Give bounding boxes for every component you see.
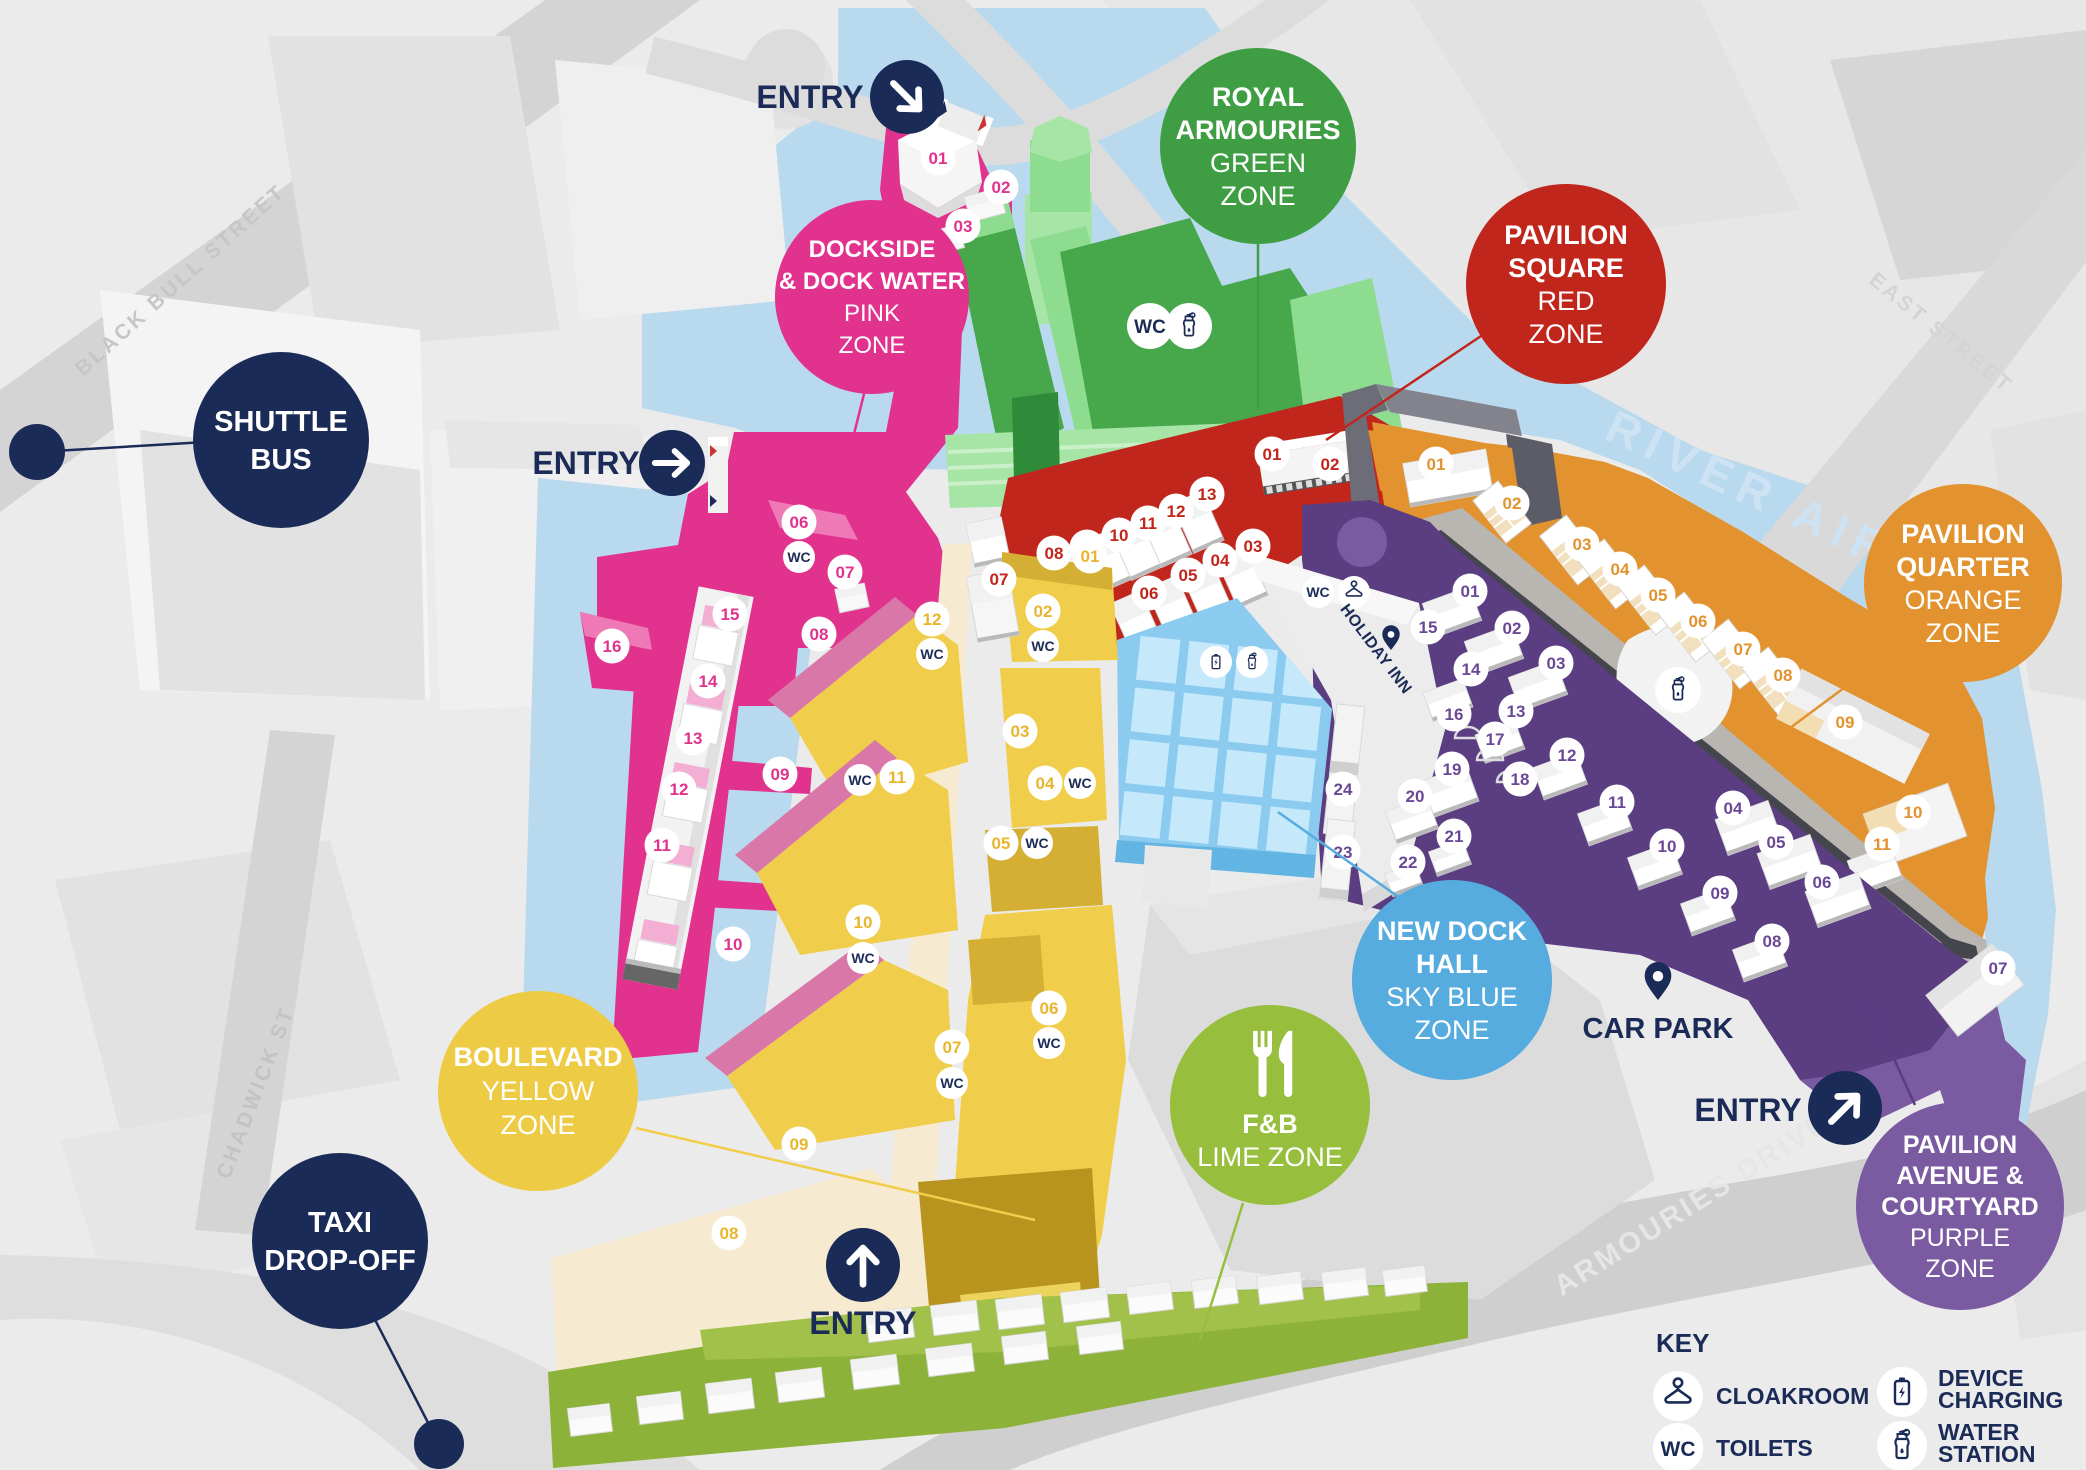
svg-text:WC: WC	[1025, 835, 1048, 851]
svg-text:ENTRY: ENTRY	[1694, 1092, 1801, 1128]
svg-text:PAVILION: PAVILION	[1504, 220, 1628, 250]
svg-text:PURPLE: PURPLE	[1910, 1224, 2010, 1252]
svg-text:10: 10	[1658, 837, 1677, 856]
svg-text:11: 11	[1873, 835, 1891, 854]
svg-text:09: 09	[771, 765, 790, 784]
svg-text:13: 13	[1198, 485, 1217, 504]
svg-text:08: 08	[810, 625, 829, 644]
svg-text:ORANGE: ORANGE	[1904, 585, 2021, 615]
svg-text:15: 15	[721, 605, 740, 624]
svg-text:WC: WC	[851, 950, 874, 966]
svg-text:ZONE: ZONE	[500, 1110, 575, 1140]
svg-text:02: 02	[1321, 455, 1340, 474]
svg-text:01: 01	[1461, 582, 1480, 601]
svg-text:WC: WC	[1031, 638, 1054, 654]
svg-text:07: 07	[1989, 959, 2008, 978]
svg-text:06: 06	[1689, 612, 1708, 631]
svg-text:03: 03	[1244, 537, 1263, 556]
svg-text:WC: WC	[940, 1075, 963, 1091]
svg-text:13: 13	[1507, 702, 1526, 721]
svg-text:ARMOURIES: ARMOURIES	[1175, 115, 1340, 145]
svg-text:03: 03	[1573, 535, 1592, 554]
svg-text:22: 22	[1399, 853, 1418, 872]
svg-text:24: 24	[1334, 780, 1353, 799]
svg-text:TAXI: TAXI	[308, 1207, 372, 1239]
svg-text:CHARGING: CHARGING	[1938, 1387, 2063, 1413]
svg-text:18: 18	[1511, 770, 1530, 789]
svg-text:03: 03	[1547, 654, 1566, 673]
svg-text:04: 04	[1036, 774, 1055, 793]
svg-text:01: 01	[1263, 445, 1282, 464]
svg-text:14: 14	[699, 672, 718, 691]
svg-text:06: 06	[790, 513, 809, 532]
svg-text:WC: WC	[1661, 1438, 1696, 1461]
svg-text:05: 05	[1649, 586, 1668, 605]
svg-text:12: 12	[1167, 502, 1186, 521]
svg-text:20: 20	[1406, 787, 1425, 806]
svg-text:11: 11	[888, 768, 906, 787]
svg-text:WC: WC	[1134, 317, 1166, 338]
svg-text:01: 01	[1427, 455, 1446, 474]
svg-text:08: 08	[1774, 666, 1793, 685]
svg-text:F&B: F&B	[1242, 1109, 1298, 1139]
svg-text:GREEN: GREEN	[1210, 148, 1306, 178]
svg-text:15: 15	[1419, 618, 1438, 637]
svg-text:ROYAL: ROYAL	[1212, 82, 1304, 112]
svg-text:14: 14	[1462, 660, 1481, 679]
svg-text:COURTYARD: COURTYARD	[1881, 1193, 2038, 1221]
svg-text:05: 05	[1767, 833, 1786, 852]
svg-text:10: 10	[854, 913, 873, 932]
svg-text:06: 06	[1040, 999, 1059, 1018]
svg-text:WC: WC	[848, 772, 871, 788]
svg-text:HALL: HALL	[1416, 949, 1488, 979]
svg-text:12: 12	[1558, 746, 1577, 765]
svg-text:& DOCK WATER: & DOCK WATER	[779, 268, 965, 295]
svg-text:08: 08	[720, 1224, 739, 1243]
svg-text:09: 09	[790, 1135, 809, 1154]
svg-text:ZONE: ZONE	[1220, 181, 1295, 211]
svg-text:11: 11	[653, 836, 671, 855]
svg-text:06: 06	[1813, 873, 1832, 892]
svg-text:07: 07	[836, 563, 855, 582]
svg-text:STATION: STATION	[1938, 1441, 2036, 1467]
svg-text:ENTRY: ENTRY	[532, 445, 639, 481]
svg-text:06: 06	[1140, 584, 1159, 603]
svg-text:03: 03	[1011, 722, 1030, 741]
svg-text:12: 12	[670, 780, 689, 799]
svg-text:WC: WC	[1037, 1035, 1060, 1051]
svg-text:08: 08	[1763, 932, 1782, 951]
svg-text:BOULEVARD: BOULEVARD	[453, 1042, 622, 1072]
svg-text:07: 07	[1734, 640, 1753, 659]
svg-text:DROP-OFF: DROP-OFF	[264, 1245, 415, 1277]
svg-text:05: 05	[992, 834, 1011, 853]
svg-text:04: 04	[1724, 799, 1743, 818]
svg-text:07: 07	[943, 1038, 962, 1057]
svg-text:TOILETS: TOILETS	[1716, 1435, 1813, 1461]
svg-text:LIME ZONE: LIME ZONE	[1197, 1142, 1343, 1172]
svg-text:AVENUE &: AVENUE &	[1896, 1162, 2023, 1190]
svg-text:05: 05	[1179, 566, 1198, 585]
svg-text:ZONE: ZONE	[1925, 1255, 1994, 1283]
svg-text:11: 11	[1608, 793, 1626, 812]
svg-text:ZONE: ZONE	[839, 332, 906, 359]
svg-text:16: 16	[1445, 705, 1464, 724]
svg-text:CLOAKROOM: CLOAKROOM	[1716, 1383, 1869, 1409]
svg-text:KEY: KEY	[1656, 1328, 1709, 1358]
svg-text:SHUTTLE: SHUTTLE	[214, 406, 348, 438]
svg-text:01: 01	[929, 149, 948, 168]
svg-text:04: 04	[1211, 551, 1230, 570]
svg-text:10: 10	[724, 935, 743, 954]
svg-text:02: 02	[1503, 619, 1522, 638]
svg-text:11: 11	[1139, 514, 1157, 533]
svg-text:04: 04	[1611, 560, 1630, 579]
svg-text:17: 17	[1486, 730, 1505, 749]
svg-text:10: 10	[1904, 803, 1923, 822]
svg-text:08: 08	[1045, 544, 1064, 563]
svg-text:03: 03	[954, 217, 973, 236]
svg-text:BUS: BUS	[250, 444, 311, 476]
svg-text:ENTRY: ENTRY	[809, 1305, 916, 1341]
svg-text:WC: WC	[1068, 775, 1091, 791]
svg-text:01: 01	[1081, 547, 1100, 566]
svg-text:12: 12	[923, 610, 942, 629]
svg-text:WC: WC	[787, 549, 810, 565]
svg-text:02: 02	[992, 178, 1011, 197]
svg-text:02: 02	[1503, 494, 1522, 513]
svg-text:SKY BLUE: SKY BLUE	[1386, 982, 1518, 1012]
svg-text:16: 16	[603, 637, 622, 656]
svg-text:DOCKSIDE: DOCKSIDE	[809, 236, 936, 263]
svg-text:PINK: PINK	[844, 300, 900, 327]
svg-text:21: 21	[1445, 827, 1464, 846]
svg-text:ZONE: ZONE	[1925, 618, 2000, 648]
svg-text:09: 09	[1711, 884, 1730, 903]
svg-text:RED: RED	[1537, 286, 1594, 316]
svg-text:PAVILION: PAVILION	[1901, 519, 2025, 549]
svg-text:SQUARE: SQUARE	[1508, 253, 1624, 283]
svg-text:ENTRY: ENTRY	[756, 79, 863, 115]
svg-text:PAVILION: PAVILION	[1903, 1131, 2017, 1159]
svg-text:NEW DOCK: NEW DOCK	[1377, 916, 1527, 946]
svg-text:07: 07	[990, 570, 1009, 589]
svg-text:10: 10	[1110, 526, 1129, 545]
svg-text:19: 19	[1443, 760, 1462, 779]
svg-text:WC: WC	[920, 646, 943, 662]
svg-text:WC: WC	[1306, 584, 1329, 600]
svg-text:ZONE: ZONE	[1528, 319, 1603, 349]
svg-text:YELLOW: YELLOW	[482, 1076, 595, 1106]
svg-text:02: 02	[1034, 602, 1053, 621]
svg-text:QUARTER: QUARTER	[1896, 552, 2030, 582]
svg-text:09: 09	[1836, 713, 1855, 732]
svg-text:CAR PARK: CAR PARK	[1583, 1013, 1734, 1045]
svg-text:ZONE: ZONE	[1414, 1015, 1489, 1045]
svg-text:13: 13	[684, 729, 703, 748]
